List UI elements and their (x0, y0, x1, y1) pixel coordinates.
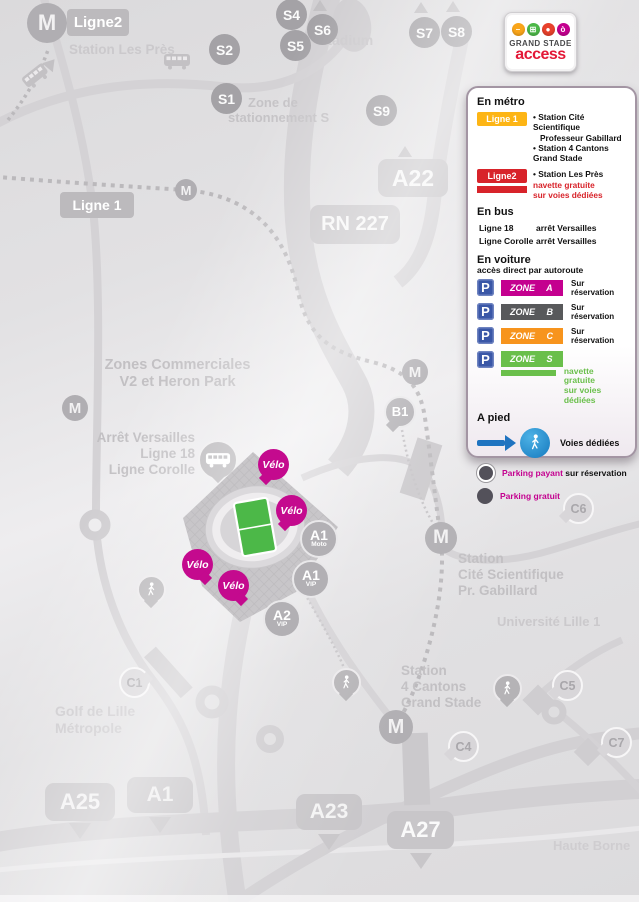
zone-a-note: Sur réservation (571, 279, 627, 297)
bike-icon: ò (557, 23, 570, 36)
legend-bus-table: Ligne 18 arrêt Versailles Ligne Corolle … (479, 222, 627, 248)
parking-c1-marker: C1 (119, 667, 150, 698)
legend-metro-heading: En métro (477, 96, 627, 108)
logo-transport-icons: – ⊞ ● ò (512, 23, 570, 36)
velo-pin-east: Vélo (276, 495, 307, 526)
gate-a1-moto-marker: A1 Moto (300, 520, 338, 558)
ligne1-station2: • Station 4 Cantons Grand Stade (533, 143, 627, 164)
ligne2-note-line2: sur voies dédiées (533, 191, 603, 201)
parking-free-icon (477, 488, 493, 504)
parking-p-icon: P (477, 279, 494, 296)
pedestrian-pin-south (332, 668, 361, 697)
legend-foot-row: Voies dédiées (477, 428, 627, 458)
ligne2-station: • Station Les Près (533, 169, 603, 179)
a25-label: A25 (45, 783, 115, 821)
access-map: Station Les Près Stadium Zone de station… (0, 0, 639, 902)
ligne1-map-label: Ligne 1 (60, 192, 134, 218)
ligne1-stations: • Station Cité Scientifique Professeur G… (533, 112, 627, 164)
parking-p-icon: P (477, 351, 494, 368)
station-cite-line2: Cité Scientifique (458, 567, 564, 583)
ligne2-line-swatch (477, 186, 527, 193)
metro-station-icon-les-pres: M (27, 3, 67, 43)
gate-a2-vip-bottom: VIP (277, 622, 287, 628)
station-4cantons-line1: Station (401, 663, 481, 679)
gate-a2-vip-marker: A2 VIP (263, 600, 301, 638)
zone-s-row: P ZONE S (477, 351, 627, 368)
velo-pin-south: Vélo (218, 570, 249, 601)
parking-s9-marker: S9 (366, 95, 397, 126)
bus-line-18: Ligne 18 (479, 222, 536, 235)
metro-icon: – (512, 23, 525, 36)
a1-label: A1 (127, 777, 193, 813)
ligne1-badge: Ligne 1 (477, 112, 527, 126)
zone-s-note-row: navette gratuite sur voies dédiées (477, 370, 627, 406)
parking-s4-marker: S4 (276, 0, 307, 30)
parking-s1-marker: S1 (211, 83, 242, 114)
zones-commerciales-line1: Zones Commerciales (95, 357, 260, 374)
direction-arrow-north-3 (446, 1, 460, 12)
station-les-pres-label: Station Les Près (69, 42, 175, 58)
parking-free-label: Parking gratuit (500, 491, 560, 501)
bus-line-corolle: Ligne Corolle (479, 235, 536, 248)
station-4cantons-label: Station 4 Cantons Grand Stade (401, 663, 481, 711)
metro-station-icon-west: M (62, 395, 88, 421)
zone-s-line-swatch (501, 370, 556, 376)
golf-line2: Métropole (55, 720, 135, 737)
velo-pin-west: Vélo (182, 549, 213, 580)
station-cite-label: Station Cité Scientifique Pr. Gabillard (458, 551, 564, 599)
station-4cantons-line2: 4 Cantons (401, 679, 481, 695)
universite-label: Université Lille 1 (497, 614, 600, 629)
direction-arrow-north-2 (414, 2, 428, 13)
a22-label: A22 (378, 159, 448, 197)
logo-subtitle: access (515, 49, 565, 62)
parking-c7-label: C7 (609, 736, 625, 750)
legend-foot-heading: A pied (477, 412, 627, 424)
legend-bus-heading: En bus (477, 206, 627, 218)
zone-b-row: P ZONE B Sur réservation (477, 303, 627, 321)
foot-note: Voies dédiées (560, 438, 619, 448)
zone-s-note-line1: navette gratuite (564, 367, 627, 387)
haute-borne-label: Haute Borne (553, 838, 630, 853)
parking-paid-label: Parking payant (502, 468, 563, 478)
zone-s-note-line2: sur voies dédiées (564, 386, 627, 406)
a27-label: A27 (387, 811, 454, 849)
arret-versailles-line1: Arrêt Versailles (85, 430, 195, 446)
ligne2-badge: Ligne2 (477, 169, 527, 183)
parking-free-row: Parking gratuit (477, 488, 627, 504)
zones-commerciales-label: Zones Commerciales V2 et Heron Park (95, 357, 260, 391)
station-4cantons-line3: Grand Stade (401, 695, 481, 711)
parking-s6-marker: S6 (307, 14, 338, 45)
zones-commerciales-line2: V2 et Heron Park (95, 374, 260, 391)
station-cite-line3: Pr. Gabillard (458, 583, 564, 599)
bus-line-corolle-stop: arrêt Versailles (536, 235, 627, 248)
parking-s5-marker: S5 (280, 30, 311, 61)
zone-stationnement-line1: Zone de (228, 95, 348, 110)
ligne2-note: navette gratuite sur voies dédiées (533, 181, 603, 201)
golf-line1: Golf de Lille (55, 703, 135, 720)
zone-a-row: P ZONE A Sur réservation (477, 279, 627, 297)
parking-c4-marker: C4 (448, 731, 479, 762)
legend-ligne1-row: Ligne 1 • Station Cité Scientifique Prof… (477, 112, 627, 164)
ligne1-station1-line1: • Station Cité Scientifique (533, 112, 627, 133)
velo-pin-label: Vélo (280, 505, 302, 517)
zone-c-row: P ZONE C Sur réservation (477, 327, 627, 345)
car-icon: ● (542, 23, 555, 36)
legend-ligne2-row: Ligne2 • Station Les Près navette gratui… (477, 169, 627, 201)
metro-station-icon-mid: M (402, 359, 428, 385)
a25-direction-arrow (69, 823, 91, 839)
parking-p-icon: P (477, 327, 494, 344)
page-bottom-edge (0, 895, 639, 902)
pedestrian-pin-east (493, 674, 522, 703)
zone-c-note: Sur réservation (571, 327, 627, 345)
velo-pin-label: Vélo (222, 580, 244, 592)
parking-c7-marker: C7 (601, 727, 632, 758)
parking-p-icon: P (477, 303, 494, 320)
bus-line-18-stop: arrêt Versailles (536, 222, 627, 235)
parking-paid-row: Parking payant sur réservation (477, 464, 627, 482)
gate-a1-moto-bottom: Moto (311, 542, 327, 548)
walk-pin-icon (520, 428, 550, 458)
metro-station-icon-4-cantons: M (379, 710, 413, 744)
gate-a1-vip-marker: A1 VIP (292, 560, 330, 598)
zone-s-note: navette gratuite sur voies dédiées (564, 367, 627, 406)
zone-b-note: Sur réservation (571, 303, 627, 321)
walk-arrow-head (505, 435, 516, 451)
a1-direction-arrow (149, 817, 171, 833)
bus-icon: ⊞ (527, 23, 540, 36)
parking-c4-label: C4 (456, 740, 472, 754)
a23-label: A23 (296, 794, 362, 830)
a27-direction-arrow (410, 853, 432, 869)
direction-arrow-north-1 (313, 0, 327, 11)
parking-paid-text: Parking payant sur réservation (502, 468, 627, 478)
zone-stationnement-label: Zone de stationnement S (228, 95, 348, 126)
ligne2-stations: • Station Les Près navette gratuite sur … (533, 169, 603, 201)
velo-pin-north: Vélo (258, 449, 289, 480)
pedestrian-icon (529, 434, 542, 451)
parking-b1-marker: B1 (384, 396, 416, 428)
parking-s8-marker: S8 (441, 16, 472, 47)
grand-stade-access-logo: – ⊞ ● ò GRAND STADE access (504, 12, 577, 72)
golf-label: Golf de Lille Métropole (55, 703, 135, 736)
bus-icon-top (163, 53, 191, 71)
metro-station-icon-ligne1: M (175, 179, 197, 201)
zone-c-badge: ZONE C (501, 328, 563, 344)
zone-stationnement-line2: stationnement S (228, 110, 348, 125)
legend-panel: En métro Ligne 1 • Station Cité Scientif… (466, 86, 637, 458)
velo-pin-label: Vélo (262, 459, 284, 471)
gate-a1-vip-bottom: VIP (306, 582, 316, 588)
zone-b-badge: ZONE B (501, 304, 563, 320)
parking-paid-suffix: sur réservation (563, 468, 627, 478)
rn227-label: RN 227 (310, 205, 400, 244)
parking-b1-label: B1 (392, 406, 409, 417)
zone-s-badge: ZONE S (501, 351, 563, 367)
parking-s2-marker: S2 (209, 34, 240, 65)
parking-s7-marker: S7 (409, 17, 440, 48)
walk-arrow-icon (477, 440, 505, 446)
velo-pin-label: Vélo (186, 559, 208, 571)
parking-paid-icon (477, 464, 495, 482)
pedestrian-pin-west (137, 575, 166, 604)
metro-station-icon-cite-scientifique: M (425, 522, 457, 554)
a22-direction-arrow (398, 146, 412, 157)
ligne2-map-label: Ligne2 (67, 9, 129, 36)
parking-c5-marker: C5 (552, 670, 583, 701)
parking-c5-label: C5 (560, 679, 576, 693)
ligne2-badge-group: Ligne2 (477, 169, 527, 193)
station-cite-line1: Station (458, 551, 564, 567)
ligne1-station1-line2: Professeur Gabillard (533, 133, 627, 143)
legend-car-subheading: accès direct par autoroute (477, 265, 627, 275)
zone-a-badge: ZONE A (501, 280, 563, 296)
a23-direction-arrow (318, 834, 340, 850)
